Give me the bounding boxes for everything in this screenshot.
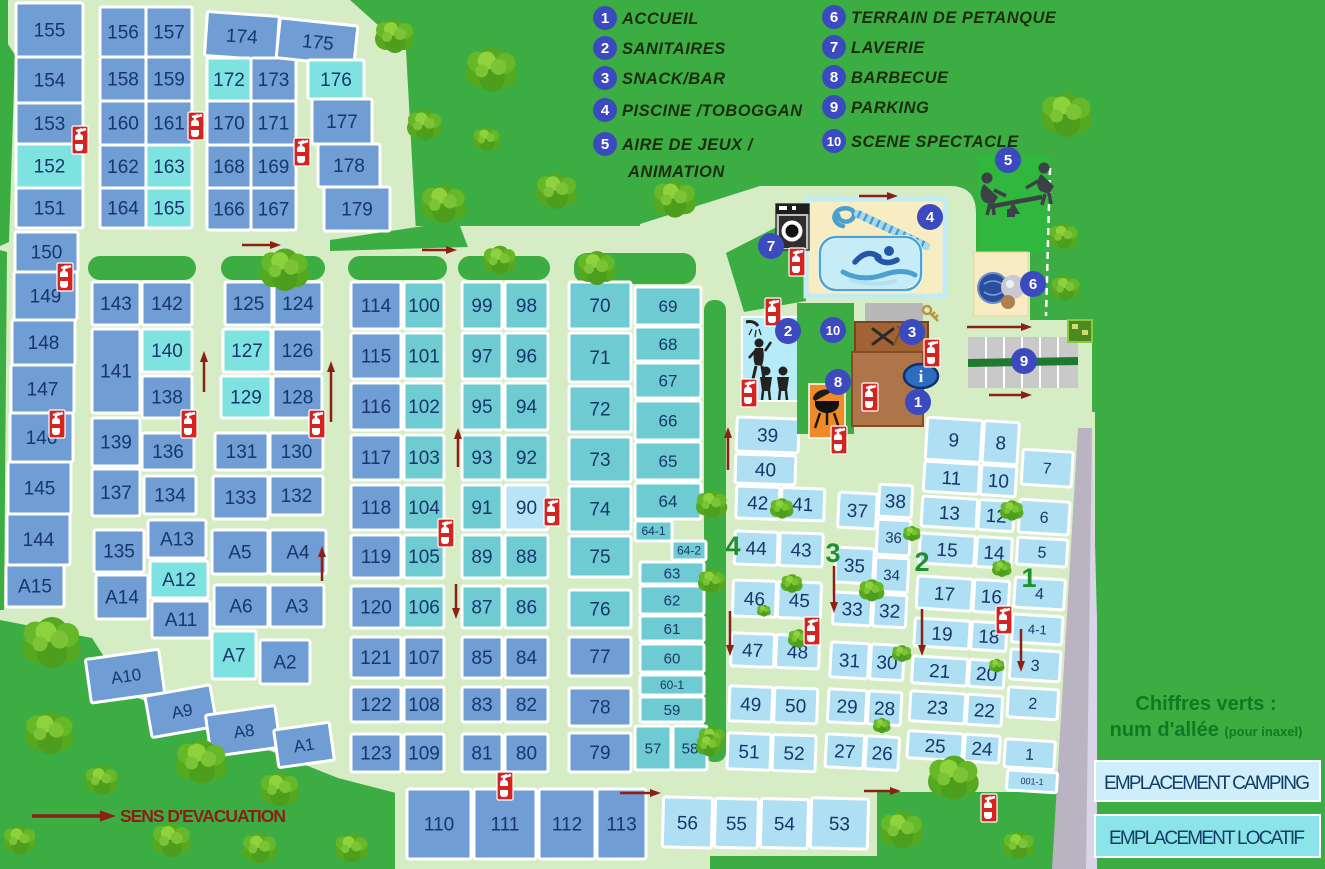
svg-text:101: 101 [408,347,440,368]
svg-text:3: 3 [825,538,840,568]
svg-text:3: 3 [1030,658,1040,676]
svg-text:5: 5 [1037,544,1047,562]
svg-text:121: 121 [360,648,392,669]
svg-text:A5: A5 [228,543,251,564]
svg-text:145: 145 [24,479,56,500]
svg-text:155: 155 [34,21,66,42]
svg-text:6: 6 [1029,276,1037,293]
svg-text:116: 116 [361,397,391,418]
svg-text:5: 5 [601,136,609,153]
svg-text:EMPLACEMENT LOCATIF: EMPLACEMENT LOCATIF [1109,828,1305,849]
svg-text:16: 16 [980,586,1002,608]
svg-text:140: 140 [151,341,183,362]
svg-text:8: 8 [834,374,842,391]
svg-text:60: 60 [664,650,681,667]
svg-text:13: 13 [938,503,960,525]
svg-text:84: 84 [516,648,538,669]
svg-text:11: 11 [941,468,962,490]
svg-text:151: 151 [34,199,66,220]
svg-text:68: 68 [659,335,678,354]
svg-text:108: 108 [408,695,440,716]
svg-text:4-1: 4-1 [1027,621,1047,637]
svg-text:8: 8 [830,69,838,86]
svg-text:71: 71 [589,348,610,369]
svg-text:164: 164 [107,199,139,220]
svg-text:2: 2 [784,323,792,340]
svg-text:169: 169 [258,157,290,178]
svg-text:152: 152 [34,157,66,178]
svg-text:2: 2 [914,547,929,577]
svg-text:81: 81 [471,744,492,765]
svg-text:154: 154 [34,71,66,92]
svg-text:139: 139 [100,433,132,454]
svg-text:170: 170 [213,114,245,135]
svg-text:82: 82 [516,695,537,716]
svg-text:65: 65 [659,452,678,471]
svg-text:7: 7 [1042,461,1052,479]
svg-text:49: 49 [740,694,762,716]
svg-text:109: 109 [408,744,440,765]
svg-text:174: 174 [225,26,259,49]
svg-text:172: 172 [213,70,245,91]
svg-text:76: 76 [589,600,610,621]
svg-text:52: 52 [783,743,805,765]
svg-text:112: 112 [552,815,582,836]
svg-text:83: 83 [471,695,492,716]
svg-text:150: 150 [31,243,63,264]
svg-text:Chiffres verts :: Chiffres verts : [1135,693,1276,715]
svg-text:118: 118 [361,498,391,519]
svg-text:127: 127 [231,341,263,362]
svg-text:43: 43 [790,540,812,562]
svg-text:133: 133 [225,488,257,509]
svg-text:A15: A15 [18,577,52,598]
svg-text:131: 131 [226,442,258,463]
svg-text:45: 45 [788,590,810,612]
svg-text:001-1: 001-1 [1020,776,1044,787]
svg-text:143: 143 [100,294,132,315]
svg-text:9: 9 [1020,353,1028,370]
svg-text:10: 10 [987,471,1009,493]
svg-text:144: 144 [23,530,55,551]
svg-text:148: 148 [28,333,60,354]
svg-text:1: 1 [1021,563,1036,593]
svg-text:44: 44 [745,538,767,560]
svg-text:136: 136 [152,442,184,463]
svg-text:1: 1 [601,10,609,27]
svg-text:7: 7 [767,238,775,255]
svg-text:1: 1 [914,394,922,411]
svg-text:168: 168 [213,157,245,178]
svg-text:63: 63 [664,565,681,582]
svg-text:61: 61 [664,621,681,638]
svg-text:97: 97 [471,347,492,368]
svg-text:138: 138 [151,388,183,409]
svg-text:57: 57 [645,740,662,757]
svg-text:94: 94 [516,397,538,418]
svg-text:160: 160 [107,114,139,135]
svg-text:24: 24 [971,739,994,761]
svg-text:128: 128 [282,388,314,409]
svg-text:27: 27 [834,741,856,763]
svg-text:3: 3 [601,70,609,87]
svg-text:123: 123 [360,744,392,765]
svg-text:i: i [919,367,924,386]
svg-text:SANITAIRES: SANITAIRES [622,40,726,58]
svg-text:39: 39 [757,425,779,447]
svg-text:PISCINE /TOBOGGAN: PISCINE /TOBOGGAN [622,102,803,120]
svg-text:A6: A6 [229,597,252,618]
svg-text:166: 166 [213,200,245,221]
svg-text:ANIMATION: ANIMATION [627,163,725,181]
svg-text:A12: A12 [162,570,196,591]
svg-text:106: 106 [408,598,440,619]
svg-text:A3: A3 [285,597,308,618]
svg-text:132: 132 [281,486,313,507]
svg-text:113: 113 [606,815,636,836]
svg-text:87: 87 [471,598,492,619]
svg-text:159: 159 [153,70,185,91]
svg-text:28: 28 [873,698,895,720]
svg-text:A4: A4 [286,543,310,564]
svg-text:90: 90 [516,498,537,519]
svg-text:7: 7 [830,39,838,56]
svg-text:103: 103 [408,448,440,469]
svg-text:6: 6 [830,9,838,26]
svg-text:175: 175 [301,31,335,55]
svg-text:156: 156 [107,23,139,44]
svg-text:34: 34 [883,567,901,585]
svg-text:15: 15 [936,540,958,562]
svg-text:1: 1 [1025,747,1035,765]
svg-text:163: 163 [153,157,185,178]
svg-text:10: 10 [826,323,840,338]
svg-text:36: 36 [885,529,903,547]
svg-text:96: 96 [516,347,537,368]
svg-text:167: 167 [258,200,290,221]
svg-text:SENS D'EVACUATION: SENS D'EVACUATION [120,806,286,826]
svg-text:4: 4 [601,102,610,119]
svg-text:26: 26 [871,743,893,765]
svg-text:64-2: 64-2 [677,544,701,558]
svg-text:31: 31 [838,650,860,672]
svg-text:8: 8 [995,433,1007,455]
svg-text:179: 179 [341,200,373,221]
svg-text:79: 79 [589,743,610,764]
svg-text:125: 125 [233,294,265,315]
svg-text:75: 75 [589,547,610,568]
svg-text:85: 85 [471,648,492,669]
svg-text:124: 124 [282,294,314,315]
svg-text:102: 102 [408,397,440,418]
svg-text:134: 134 [154,486,186,507]
svg-text:5: 5 [1004,152,1012,169]
svg-text:10: 10 [827,134,841,149]
svg-text:38: 38 [884,491,906,513]
svg-text:33: 33 [841,599,863,621]
svg-text:6: 6 [1039,509,1049,527]
svg-text:92: 92 [516,448,537,469]
svg-text:56: 56 [677,813,699,835]
svg-text:69: 69 [659,297,678,316]
svg-text:LAVERIE: LAVERIE [851,39,925,57]
svg-text:4: 4 [725,531,740,561]
svg-text:60-1: 60-1 [660,678,684,692]
svg-text:78: 78 [589,698,610,719]
svg-text:EMPLACEMENT CAMPING: EMPLACEMENT CAMPING [1104,773,1310,794]
svg-text:137: 137 [100,483,132,504]
svg-text:19: 19 [931,624,953,646]
svg-text:A11: A11 [165,610,197,631]
svg-text:120: 120 [360,598,392,619]
svg-text:42: 42 [747,493,769,515]
svg-text:176: 176 [320,70,352,91]
svg-text:165: 165 [153,199,185,220]
svg-text:TERRAIN DE PETANQUE: TERRAIN DE PETANQUE [851,9,1057,27]
svg-text:66: 66 [659,411,678,430]
svg-text:111: 111 [491,815,520,836]
svg-text:62: 62 [664,592,681,609]
svg-text:162: 162 [107,157,139,178]
svg-text:40: 40 [754,460,776,482]
svg-text:54: 54 [774,814,796,836]
svg-text:58: 58 [682,740,699,757]
svg-text:178: 178 [333,156,365,177]
svg-text:153: 153 [34,114,66,135]
svg-text:177: 177 [326,112,358,133]
svg-text:A7: A7 [222,646,245,667]
svg-text:29: 29 [836,696,858,718]
svg-text:64-1: 64-1 [641,524,665,538]
svg-text:117: 117 [361,448,391,469]
svg-text:130: 130 [281,442,313,463]
svg-text:47: 47 [742,640,764,662]
svg-text:ACCUEIL: ACCUEIL [621,10,699,28]
svg-text:3: 3 [908,324,916,341]
svg-text:147: 147 [27,380,59,401]
svg-text:74: 74 [589,500,611,521]
svg-text:A13: A13 [160,530,194,551]
svg-text:73: 73 [589,450,610,471]
svg-text:115: 115 [361,347,391,368]
svg-text:41: 41 [792,495,814,517]
svg-text:77: 77 [589,647,610,668]
svg-text:100: 100 [408,296,440,317]
svg-text:SNACK/BAR: SNACK/BAR [622,70,726,88]
svg-text:25: 25 [924,736,946,758]
svg-text:A1: A1 [292,735,315,757]
svg-text:110: 110 [424,815,454,836]
svg-text:23: 23 [926,697,948,719]
svg-text:2: 2 [1028,696,1038,714]
svg-text:BARBECUE: BARBECUE [851,69,949,87]
svg-text:17: 17 [933,584,955,606]
svg-text:95: 95 [471,397,492,418]
svg-text:37: 37 [846,501,868,523]
svg-text:86: 86 [516,598,537,619]
svg-text:141: 141 [100,362,132,383]
svg-text:114: 114 [361,296,392,317]
svg-text:PARKING: PARKING [851,99,929,117]
svg-text:2: 2 [601,40,609,57]
svg-text:107: 107 [408,648,440,669]
svg-text:98: 98 [516,296,537,317]
svg-text:AIRE DE JEUX /: AIRE DE JEUX / [621,136,755,154]
svg-text:22: 22 [973,700,995,722]
svg-text:32: 32 [879,601,901,623]
svg-text:55: 55 [726,814,748,836]
svg-text:9: 9 [830,99,838,116]
svg-text:A14: A14 [105,588,139,609]
svg-text:104: 104 [408,498,440,519]
svg-text:64: 64 [659,492,678,511]
svg-text:93: 93 [471,448,492,469]
svg-text:21: 21 [928,661,950,683]
svg-text:171: 171 [258,114,290,135]
svg-text:173: 173 [258,70,290,91]
svg-text:135: 135 [103,542,135,563]
svg-text:80: 80 [516,744,537,765]
svg-text:53: 53 [829,814,851,836]
svg-text:A2: A2 [273,653,296,674]
svg-text:72: 72 [589,400,610,421]
svg-text:A8: A8 [232,721,255,743]
svg-text:A9: A9 [170,700,194,722]
svg-text:119: 119 [361,547,391,568]
svg-text:142: 142 [151,294,183,315]
svg-text:157: 157 [153,23,185,44]
svg-text:158: 158 [107,70,139,91]
svg-text:9: 9 [948,430,960,452]
svg-text:122: 122 [360,695,392,716]
svg-text:59: 59 [664,702,681,719]
svg-text:129: 129 [230,388,262,409]
svg-text:105: 105 [408,547,440,568]
svg-text:50: 50 [785,696,807,718]
svg-text:51: 51 [738,742,760,764]
svg-text:161: 161 [153,114,185,135]
svg-text:99: 99 [471,296,492,317]
svg-text:89: 89 [471,547,492,568]
svg-text:91: 91 [471,498,492,519]
svg-text:4: 4 [926,209,935,226]
svg-text:SCENE SPECTACLE: SCENE SPECTACLE [851,133,1019,151]
svg-text:88: 88 [516,547,537,568]
svg-text:126: 126 [282,341,314,362]
svg-text:35: 35 [843,556,865,578]
svg-text:70: 70 [589,296,610,317]
svg-text:67: 67 [659,371,678,390]
